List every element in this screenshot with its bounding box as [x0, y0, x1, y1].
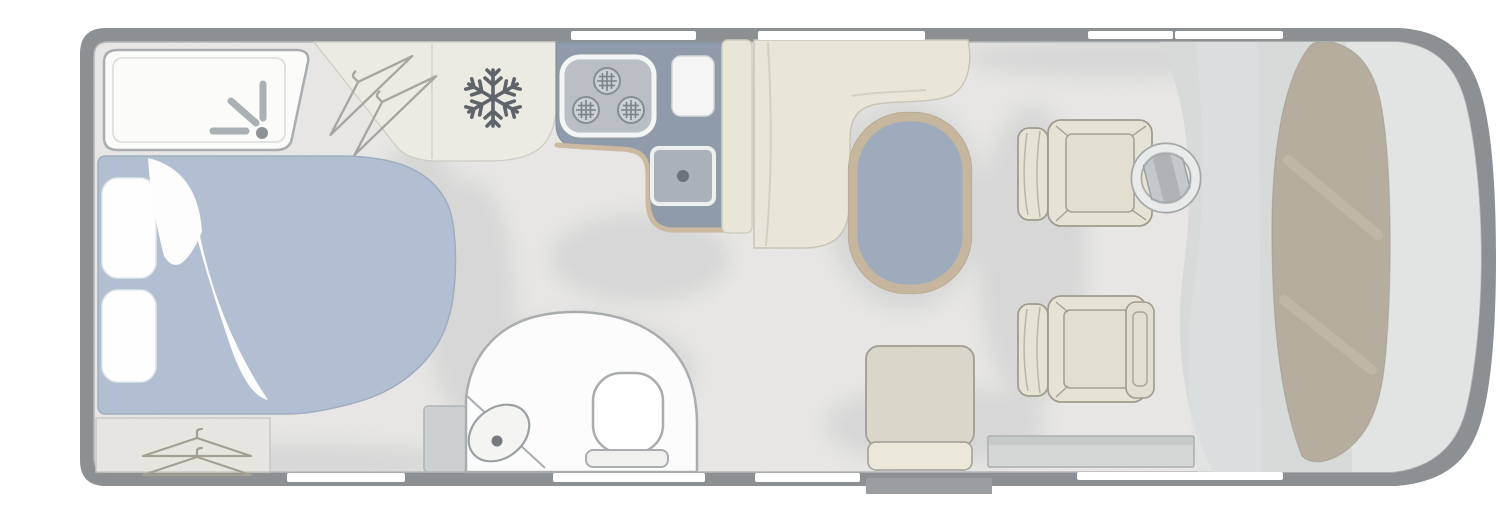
seat-armrest: [1126, 302, 1154, 398]
dinette-table: [849, 113, 972, 294]
window-top-2: [758, 31, 925, 40]
seat-armrest: [1018, 304, 1048, 396]
shower-tray: [104, 50, 308, 150]
sideboard: [988, 436, 1194, 467]
pillow: [102, 178, 156, 278]
seat-armrest: [1018, 128, 1048, 220]
dashboard: [1272, 41, 1390, 462]
hob: [560, 55, 657, 138]
travel-seat-cushion: [868, 442, 972, 470]
travel-seat: [866, 346, 974, 470]
worktop-board: [672, 56, 714, 116]
passenger-swivel-seat: [1018, 296, 1154, 402]
double-bed: [98, 156, 456, 414]
sink: [650, 146, 716, 206]
window-top-1: [571, 31, 696, 40]
floorplan-canvas: [0, 0, 1500, 513]
window-top-3: [1088, 31, 1173, 39]
kitchen-end-panel: [722, 40, 752, 233]
window-bottom-4: [1077, 472, 1283, 480]
seat-cushion: [1064, 310, 1130, 388]
window-bottom-3: [755, 473, 860, 482]
burner: [573, 97, 599, 123]
shower-drain-dot: [256, 127, 268, 139]
sideboard-top-edge: [989, 437, 1193, 445]
burner: [594, 68, 620, 94]
window-top-4: [1175, 31, 1283, 39]
entry-step: [866, 478, 992, 494]
side-cabinet: [424, 406, 467, 472]
drain-dot: [492, 436, 503, 447]
pillow: [102, 290, 156, 382]
seat-cushion: [1066, 134, 1134, 212]
window-bottom-1: [287, 473, 405, 482]
window-bottom-2: [553, 473, 705, 482]
toilet: [586, 373, 668, 467]
rear-wardrobe: [96, 418, 270, 475]
drain-dot: [677, 170, 689, 182]
burner: [618, 97, 644, 123]
